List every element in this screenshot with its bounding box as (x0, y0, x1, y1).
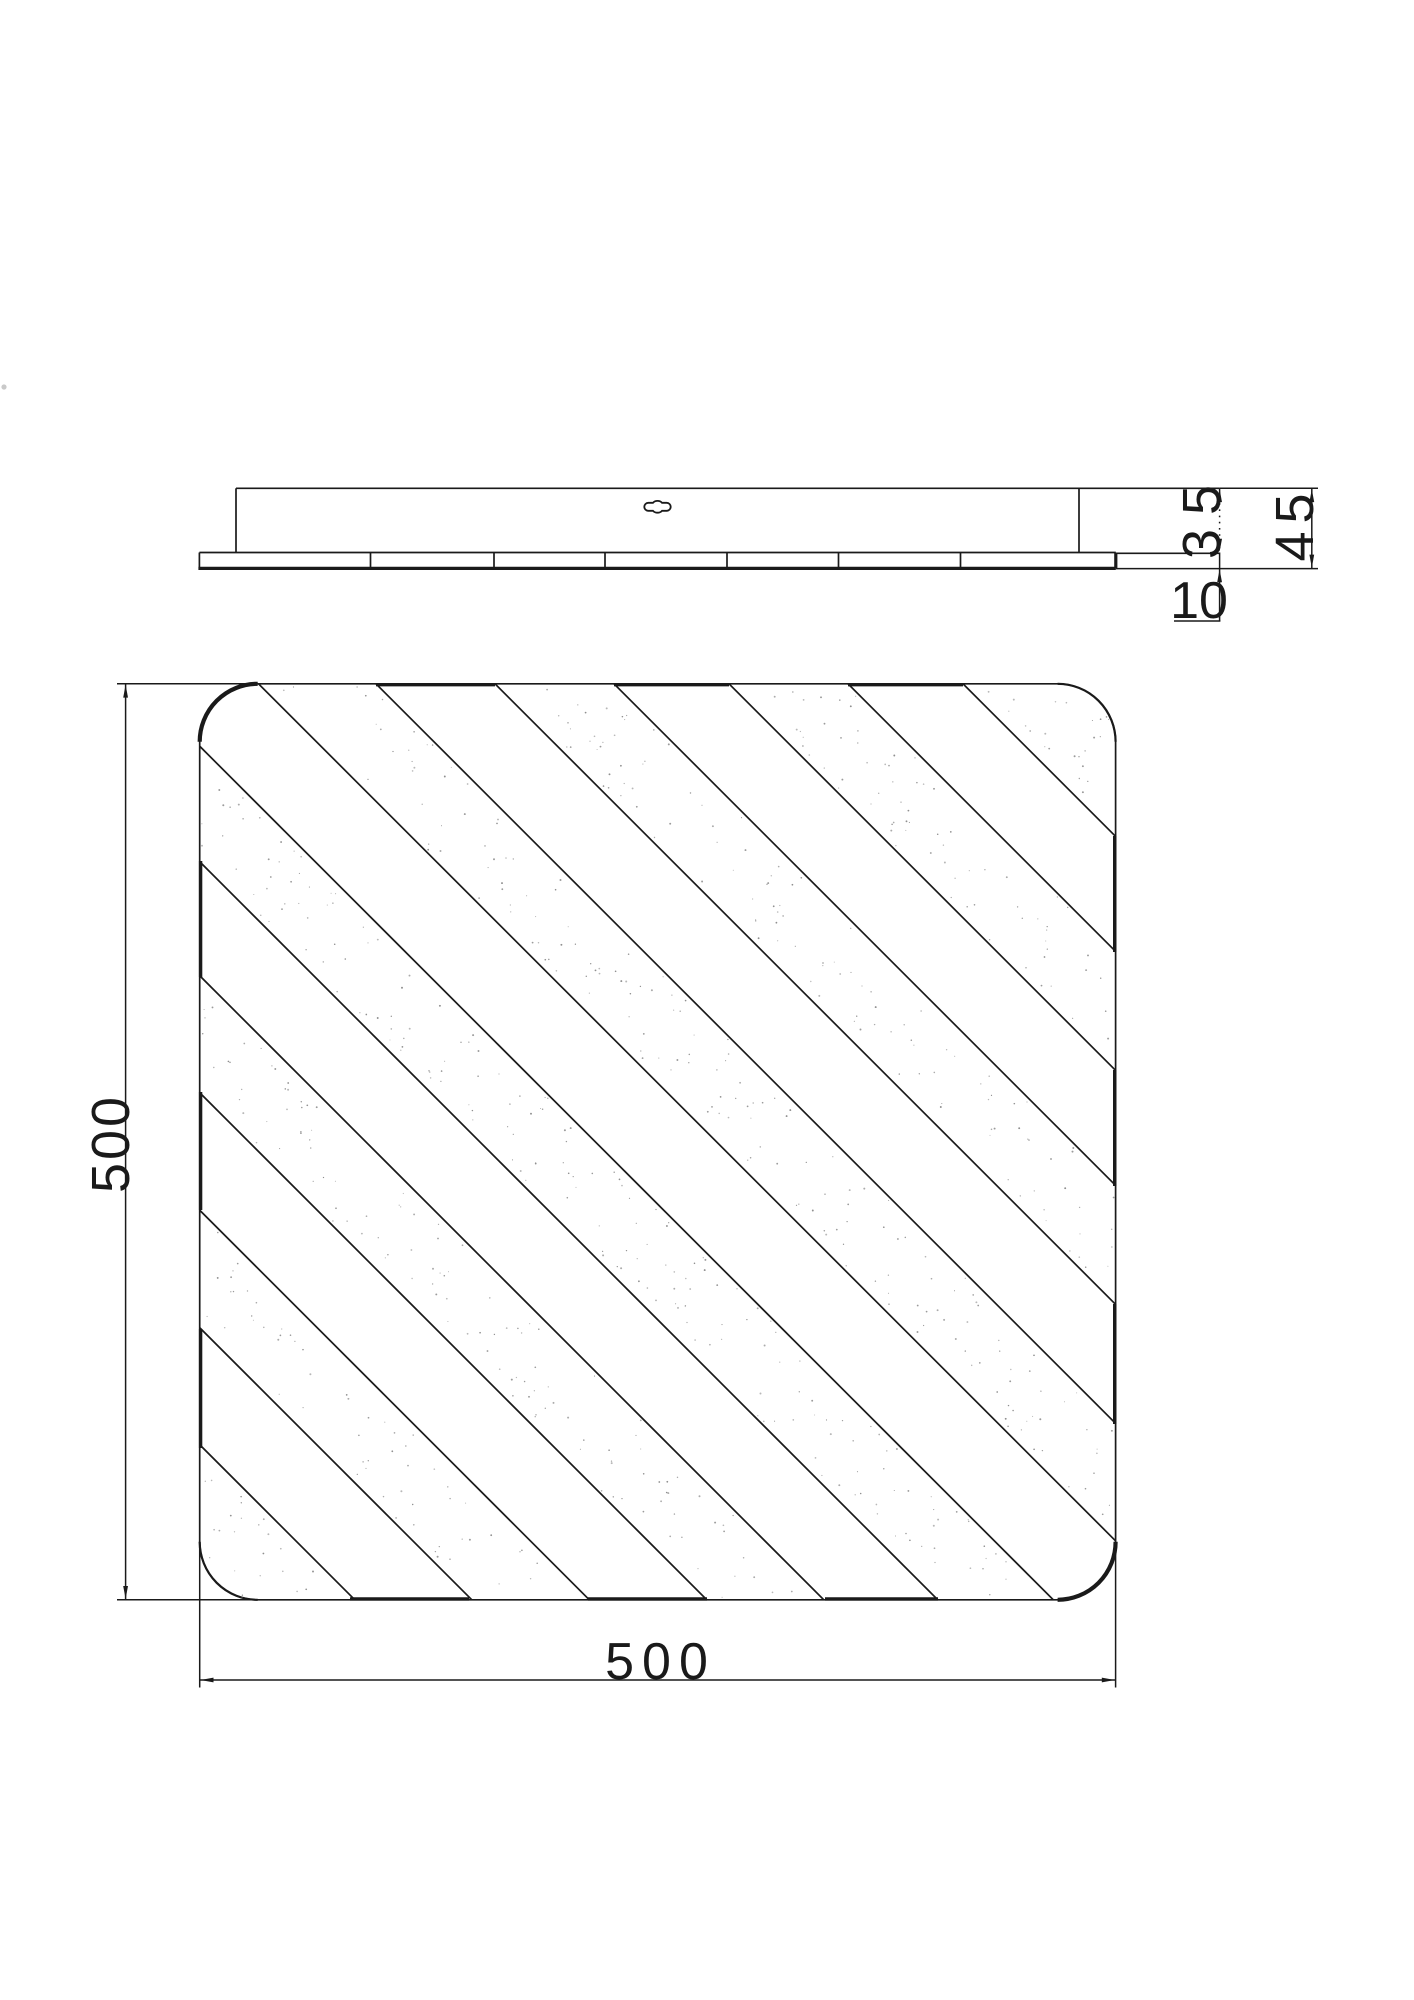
svg-text:10: 10 (1170, 572, 1228, 630)
svg-text:45: 45 (1265, 485, 1325, 561)
svg-text:500: 500 (605, 1633, 716, 1691)
svg-text:500: 500 (81, 1094, 141, 1193)
svg-text:35: 35 (1172, 471, 1232, 559)
